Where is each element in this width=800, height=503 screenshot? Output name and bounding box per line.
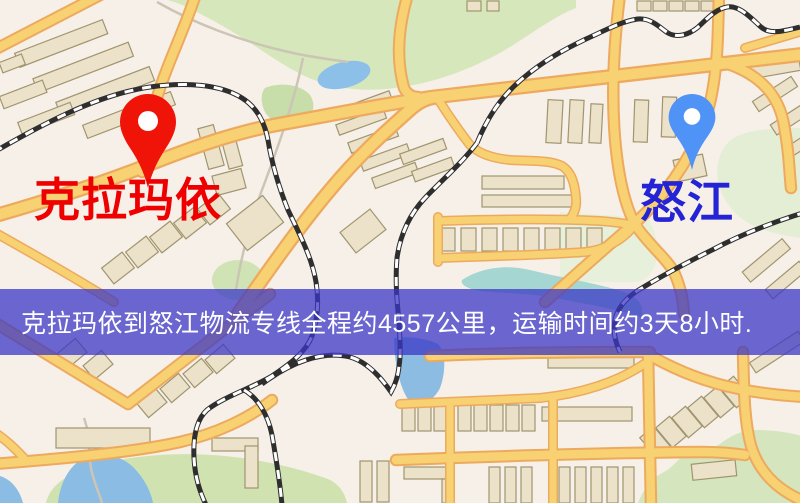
- route-info-text: 克拉玛依到怒江物流专线全程约4557公里，运输时间约3天8小时.: [0, 304, 752, 340]
- origin-label: 克拉玛依: [34, 177, 222, 223]
- destination-label: 怒江: [640, 179, 734, 225]
- map-tiles: [0, 0, 800, 503]
- destination-pin-icon[interactable]: [666, 94, 718, 172]
- origin-pin-hole: [138, 111, 158, 131]
- map-canvas[interactable]: 克拉玛依 怒江 克拉玛依到怒江物流专线全程约4557公里，运输时间约3天8小时.: [0, 0, 800, 503]
- destination-pin-hole: [684, 108, 701, 125]
- destination-pin-body: [669, 94, 716, 170]
- route-info-banner: 克拉玛依到怒江物流专线全程约4557公里，运输时间约3天8小时.: [0, 289, 800, 355]
